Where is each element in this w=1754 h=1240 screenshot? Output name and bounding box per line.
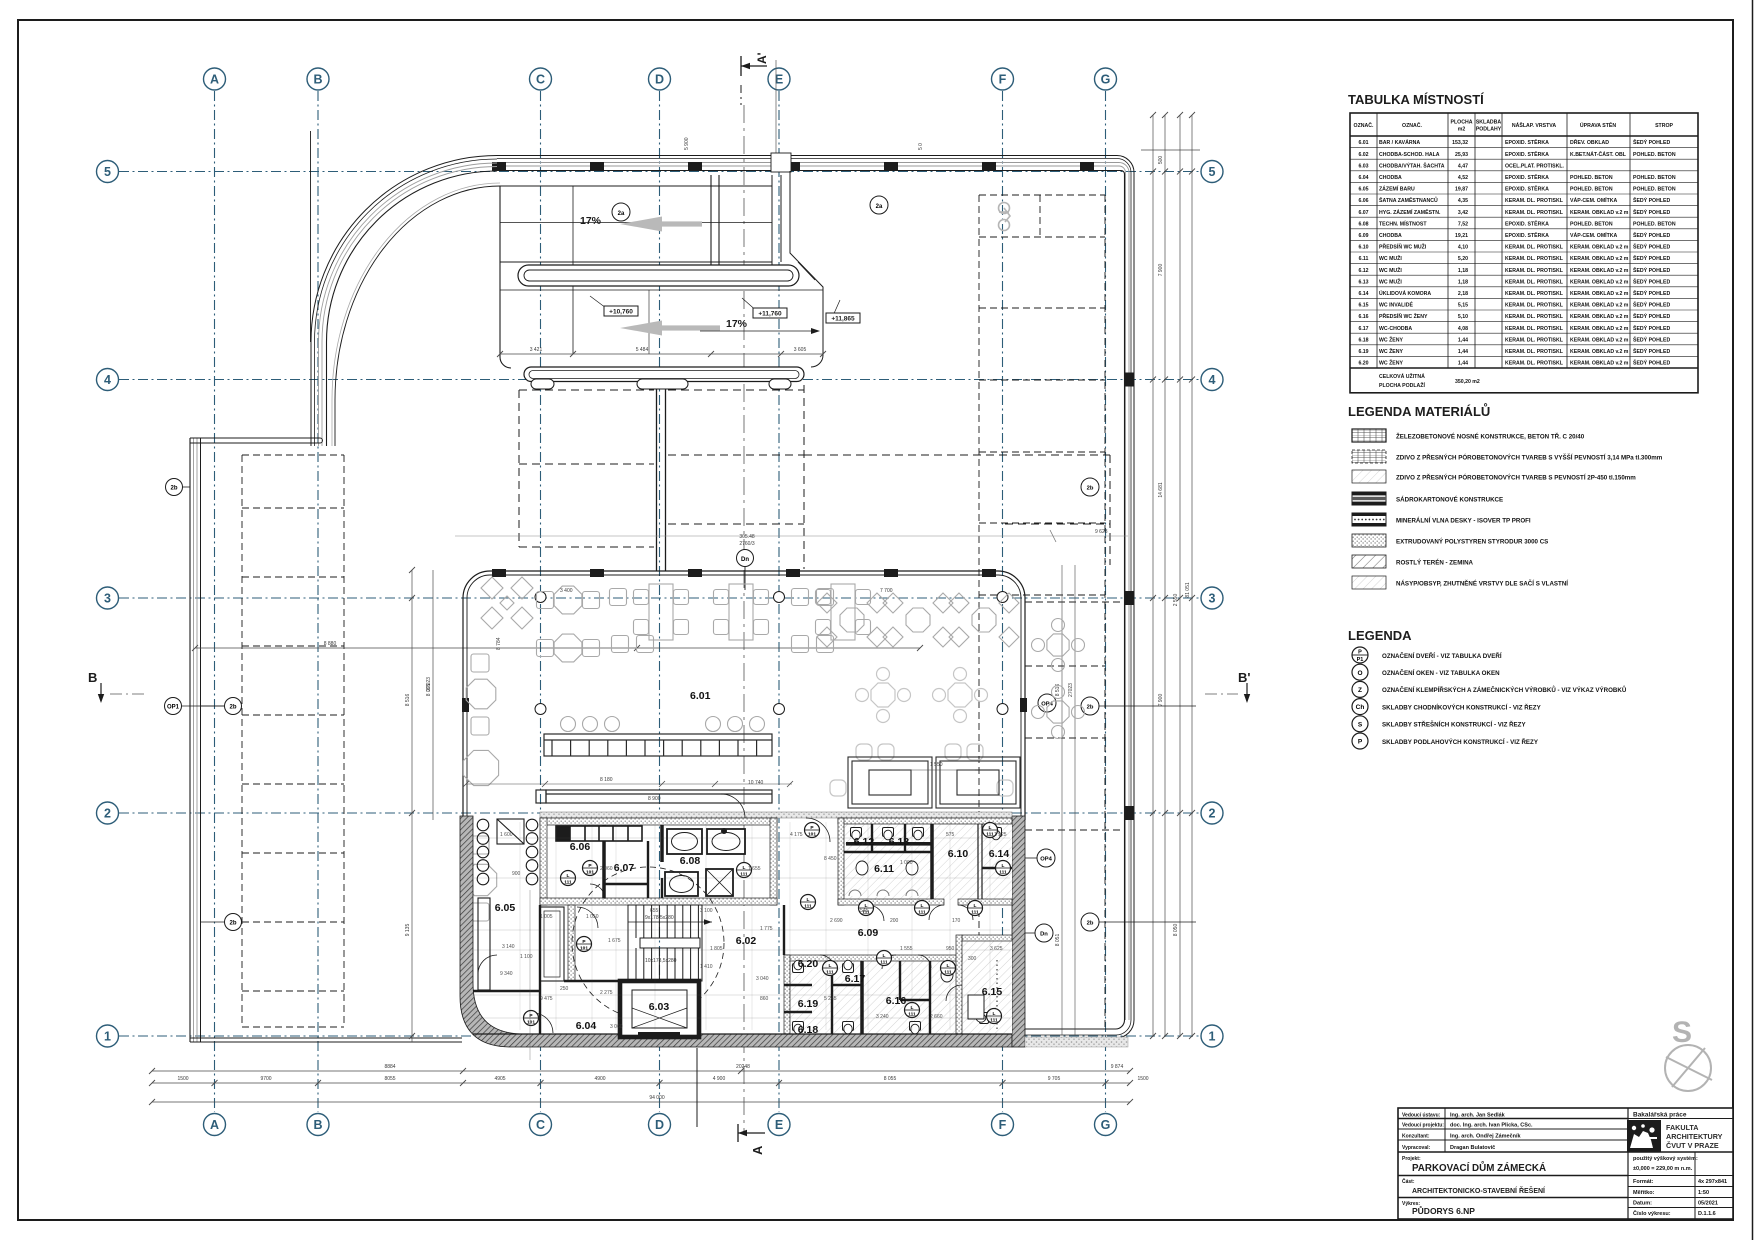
- svg-text:3 140: 3 140: [502, 944, 515, 950]
- svg-text:2 275: 2 275: [600, 990, 613, 996]
- svg-text:DŘEV. OBKLAD: DŘEV. OBKLAD: [1570, 138, 1609, 146]
- svg-text:3,42: 3,42: [1458, 210, 1468, 216]
- svg-text:8 180: 8 180: [600, 777, 613, 783]
- svg-text:KERAM. OBKLAD v.2 m: KERAM. OBKLAD v.2 m: [1570, 268, 1629, 274]
- svg-text:111: 111: [944, 969, 952, 975]
- svg-text:10x178,5x280: 10x178,5x280: [645, 958, 677, 964]
- svg-text:PŘEDSÍŇ WC ŽENY: PŘEDSÍŇ WC ŽENY: [1379, 312, 1428, 320]
- svg-text:PARKOVACÍ DŮM ZÁMECKÁ: PARKOVACÍ DŮM ZÁMECKÁ: [1412, 1162, 1546, 1174]
- svg-text:POHLED. BETON: POHLED. BETON: [1570, 221, 1613, 227]
- svg-text:8 516: 8 516: [405, 694, 411, 707]
- svg-text:KERAM. DL. PROTISKL: KERAM. DL. PROTISKL: [1505, 245, 1564, 251]
- svg-text:KERAM. DL. PROTISKL: KERAM. DL. PROTISKL: [1505, 361, 1564, 367]
- svg-text:6.17: 6.17: [845, 973, 866, 985]
- svg-text:6.17: 6.17: [1358, 326, 1368, 332]
- svg-text:8 055: 8 055: [884, 1076, 897, 1082]
- svg-text:L: L: [807, 897, 810, 903]
- svg-text:6.02: 6.02: [1358, 152, 1368, 158]
- svg-text:1 555: 1 555: [900, 946, 913, 952]
- svg-text:OZNAČENÍ KLEMPÍŘSKÝCH A ZÁMEČN: OZNAČENÍ KLEMPÍŘSKÝCH A ZÁMEČNICKÝCH VÝR…: [1382, 686, 1627, 694]
- svg-text:5: 5: [104, 165, 111, 179]
- svg-text:G: G: [1101, 72, 1111, 86]
- svg-text:5: 5: [1209, 165, 1216, 179]
- svg-text:Z: Z: [1358, 687, 1362, 694]
- svg-text:2: 2: [1209, 806, 1216, 820]
- svg-text:POHLED. BETON: POHLED. BETON: [1633, 175, 1676, 181]
- svg-text:111: 111: [804, 903, 812, 909]
- svg-text:FAKULTA: FAKULTA: [1666, 1123, 1698, 1132]
- svg-text:6.11: 6.11: [874, 863, 894, 875]
- svg-text:ŠEDÝ POHLED: ŠEDÝ POHLED: [1633, 347, 1670, 355]
- svg-text:2a: 2a: [876, 204, 883, 210]
- svg-text:PLOCHA PODLAŽÍ: PLOCHA PODLAŽÍ: [1379, 381, 1425, 389]
- svg-text:ŠEDÝ POHLED: ŠEDÝ POHLED: [1633, 266, 1670, 274]
- svg-text:6.07: 6.07: [1358, 210, 1368, 216]
- svg-text:Ing. arch. Jan Sedlák: Ing. arch. Jan Sedlák: [1450, 1112, 1506, 1118]
- svg-text:C: C: [536, 1118, 545, 1132]
- svg-text:305.48: 305.48: [739, 534, 755, 540]
- svg-text:KERAM. DL. PROTISKL: KERAM. DL. PROTISKL: [1505, 279, 1564, 285]
- svg-text:+11,760: +11,760: [758, 311, 782, 318]
- svg-text:8 880: 8 880: [324, 641, 337, 647]
- svg-text:Datum:: Datum:: [1633, 1201, 1652, 1207]
- svg-text:8884: 8884: [384, 1064, 395, 1070]
- svg-text:6.04: 6.04: [576, 1020, 597, 1032]
- svg-text:2a: 2a: [618, 211, 625, 217]
- svg-text:ARCHITEKTONICKO-STAVEBNÍ ŘEŠEN: ARCHITEKTONICKO-STAVEBNÍ ŘEŠENÍ: [1412, 1186, 1546, 1195]
- svg-text:350,20 m2: 350,20 m2: [1455, 379, 1480, 385]
- svg-text:+10,760: +10,760: [609, 309, 633, 316]
- svg-text:KERAM. OBKLAD v.2 m: KERAM. OBKLAD v.2 m: [1570, 349, 1629, 355]
- svg-text:2 550: 2 550: [1173, 594, 1179, 607]
- svg-text:ŠEDÝ POHLED: ŠEDÝ POHLED: [1633, 243, 1670, 251]
- svg-text:6.15: 6.15: [1358, 303, 1368, 309]
- svg-text:Konzultant:: Konzultant:: [1402, 1134, 1430, 1140]
- svg-text:ŠEDÝ POHLED: ŠEDÝ POHLED: [1633, 301, 1670, 309]
- svg-text:D: D: [655, 72, 664, 86]
- svg-text:LEGENDA: LEGENDA: [1348, 628, 1412, 643]
- svg-text:1,44: 1,44: [1458, 361, 1468, 367]
- svg-text:1500: 1500: [1137, 1076, 1148, 1082]
- svg-text:6.10: 6.10: [948, 848, 969, 860]
- svg-text:SKLADBY PODLAHOVÝCH KONSTRUKCÍ: SKLADBY PODLAHOVÝCH KONSTRUKCÍ - VIZ ŘEZ…: [1382, 738, 1539, 746]
- svg-text:KERAM. OBKLAD v.2 m: KERAM. OBKLAD v.2 m: [1570, 210, 1629, 216]
- svg-text:WC MUŽI: WC MUŽI: [1379, 277, 1402, 285]
- svg-text:6.03: 6.03: [1358, 163, 1368, 169]
- svg-text:CHODBA: CHODBA: [1379, 233, 1402, 239]
- svg-text:B: B: [313, 72, 322, 86]
- svg-text:20248: 20248: [736, 1064, 750, 1070]
- svg-text:EXTRUDOVANÝ POLYSTYREN STYRODU: EXTRUDOVANÝ POLYSTYREN STYRODUR 3000 CS: [1396, 539, 1548, 546]
- svg-text:L: L: [993, 1011, 996, 1017]
- svg-text:1,18: 1,18: [1458, 268, 1468, 274]
- svg-text:±0,000 = 229,00 m n.m.: ±0,000 = 229,00 m n.m.: [1633, 1166, 1693, 1172]
- svg-text:KERAM. DL. PROTISKL: KERAM. DL. PROTISKL: [1505, 326, 1564, 332]
- svg-text:6.09: 6.09: [1358, 233, 1368, 239]
- svg-text:OZNAČENÍ OKEN - VIZ TABULKA OK: OZNAČENÍ OKEN - VIZ TABULKA OKEN: [1382, 669, 1500, 677]
- svg-text:A: A: [210, 72, 219, 86]
- svg-text:111: 111: [740, 871, 748, 877]
- svg-text:6.18: 6.18: [798, 1024, 819, 1036]
- svg-text:8 450: 8 450: [824, 856, 837, 862]
- svg-text:1 925: 1 925: [994, 832, 1007, 838]
- svg-text:EPOXID. STĚRKA: EPOXID. STĚRKA: [1505, 173, 1549, 181]
- svg-text:3 421: 3 421: [530, 347, 543, 353]
- svg-text:OP1: OP1: [167, 705, 180, 711]
- svg-text:VÁP-CEM. OMÍTKA: VÁP-CEM. OMÍTKA: [1570, 196, 1618, 204]
- svg-text:SKLADBY STŘEŠNÍCH KONSTRUKCÍ -: SKLADBY STŘEŠNÍCH KONSTRUKCÍ - VIZ ŘEZY: [1382, 721, 1526, 729]
- svg-text:ŠEDÝ POHLED: ŠEDÝ POHLED: [1633, 208, 1670, 216]
- svg-text:Vedoucí ústavu:: Vedoucí ústavu:: [1402, 1112, 1441, 1118]
- svg-text:ŠEDÝ POHLED: ŠEDÝ POHLED: [1633, 312, 1670, 320]
- svg-text:7,52: 7,52: [1458, 221, 1468, 227]
- svg-text:4,47: 4,47: [1458, 163, 1468, 169]
- svg-text:2 660: 2 660: [930, 1014, 943, 1020]
- svg-text:EPOXID. STĚRKA: EPOXID. STĚRKA: [1505, 138, 1549, 146]
- svg-text:1 000: 1 000: [900, 860, 913, 866]
- svg-text:KERAM. OBKLAD v.2 m: KERAM. OBKLAD v.2 m: [1570, 291, 1629, 297]
- svg-text:PŘEDSÍŇ WC MUŽI: PŘEDSÍŇ WC MUŽI: [1379, 243, 1427, 251]
- svg-text:4: 4: [104, 373, 111, 387]
- svg-text:ÚPRAVA STĚN: ÚPRAVA STĚN: [1580, 121, 1616, 129]
- svg-text:4: 4: [1209, 373, 1216, 387]
- svg-text:545: 545: [860, 908, 869, 914]
- svg-text:2b: 2b: [229, 705, 236, 711]
- svg-text:2b: 2b: [1087, 486, 1094, 492]
- svg-text:1 655: 1 655: [748, 866, 761, 872]
- svg-text:MINERÁLNÍ VLNA DESKY - ISOVER: MINERÁLNÍ VLNA DESKY - ISOVER TP PROFI: [1396, 517, 1531, 525]
- svg-text:KERAM. OBKLAD v.2 m: KERAM. OBKLAD v.2 m: [1570, 314, 1629, 320]
- svg-text:L: L: [883, 953, 886, 959]
- svg-text:6.19: 6.19: [1358, 349, 1368, 355]
- svg-text:6.18: 6.18: [1358, 337, 1368, 343]
- svg-text:9 340: 9 340: [500, 971, 513, 977]
- svg-text:111: 111: [990, 1017, 998, 1023]
- svg-text:Číslo výkresu:: Číslo výkresu:: [1633, 1210, 1671, 1217]
- svg-text:WC ŽENY: WC ŽENY: [1379, 335, 1403, 343]
- svg-text:ROSTLÝ TERÉN - ZEMINA: ROSTLÝ TERÉN - ZEMINA: [1396, 559, 1474, 567]
- svg-text:B': B': [1238, 670, 1250, 685]
- svg-text:1 675: 1 675: [608, 938, 621, 944]
- svg-text:2b: 2b: [1087, 705, 1094, 711]
- svg-text:POHLED. BETON: POHLED. BETON: [1633, 187, 1676, 193]
- svg-text:KERAM. OBKLAD v.2 m: KERAM. OBKLAD v.2 m: [1570, 326, 1629, 332]
- svg-text:KERAM. DL. PROTISKL: KERAM. DL. PROTISKL: [1505, 268, 1564, 274]
- svg-text:19,21: 19,21: [1455, 233, 1468, 239]
- svg-text:5,20: 5,20: [1458, 256, 1468, 262]
- svg-text:POHLED. BETON: POHLED. BETON: [1633, 152, 1676, 158]
- svg-text:STROP: STROP: [1655, 123, 1673, 129]
- svg-text:KERAM. OBKLAD v.2 m: KERAM. OBKLAD v.2 m: [1570, 337, 1629, 343]
- svg-text:6.16: 6.16: [886, 995, 907, 1007]
- svg-text:CHODBA: CHODBA: [1379, 175, 1402, 181]
- svg-text:2 690: 2 690: [830, 918, 843, 924]
- svg-text:1 100: 1 100: [520, 954, 533, 960]
- svg-text:TECHN. MÍSTNOST: TECHN. MÍSTNOST: [1379, 219, 1427, 227]
- svg-text:2b: 2b: [1087, 921, 1094, 927]
- svg-text:NÁSYP/OBSYP, ZHUTNĚNÉ VRSTVY D: NÁSYP/OBSYP, ZHUTNĚNÉ VRSTVY DLE SAČÍ S …: [1396, 580, 1568, 588]
- svg-text:9 475: 9 475: [540, 996, 553, 1002]
- svg-text:4905: 4905: [494, 1076, 505, 1082]
- svg-text:A': A': [755, 52, 769, 64]
- svg-text:WC ŽENY: WC ŽENY: [1379, 347, 1403, 355]
- svg-text:6.01: 6.01: [690, 690, 711, 702]
- svg-text:6.07: 6.07: [614, 862, 635, 874]
- svg-text:4900: 4900: [594, 1076, 605, 1082]
- svg-text:1:50: 1:50: [1698, 1190, 1709, 1196]
- svg-text:8055: 8055: [384, 1076, 395, 1082]
- svg-text:3 040: 3 040: [756, 976, 769, 982]
- svg-text:19,87: 19,87: [1455, 187, 1468, 193]
- svg-text:6.15: 6.15: [982, 986, 1003, 998]
- svg-text:05/2021: 05/2021: [1698, 1201, 1718, 1207]
- svg-text:3 400: 3 400: [560, 588, 573, 594]
- svg-text:ŠEDÝ POHLED: ŠEDÝ POHLED: [1633, 254, 1670, 262]
- svg-text:D: D: [655, 1118, 664, 1132]
- svg-text:9x178,5x280: 9x178,5x280: [645, 915, 674, 921]
- svg-text:Ch: Ch: [1356, 704, 1365, 711]
- svg-text:L: L: [974, 903, 977, 909]
- svg-text:5,15: 5,15: [1458, 303, 1468, 309]
- svg-text:HYG. ZÁZEMÍ ZAMĚSTN.: HYG. ZÁZEMÍ ZAMĚSTN.: [1379, 208, 1441, 216]
- svg-text:L: L: [829, 963, 832, 969]
- svg-text:CHODBA-SCHOD. HALA: CHODBA-SCHOD. HALA: [1379, 152, 1440, 158]
- svg-text:P: P: [1358, 650, 1362, 656]
- svg-text:WC MUŽI: WC MUŽI: [1379, 254, 1402, 262]
- svg-text:ŠEDÝ POHLED: ŠEDÝ POHLED: [1633, 196, 1670, 204]
- svg-text:8 050: 8 050: [1173, 924, 1179, 937]
- svg-text:D.1.1.6: D.1.1.6: [1698, 1211, 1716, 1217]
- svg-text:1 805: 1 805: [710, 946, 723, 952]
- svg-text:A: A: [210, 1118, 219, 1132]
- svg-text:ŽELEZOBETONOVÉ NOSNÉ KONSTRUKC: ŽELEZOBETONOVÉ NOSNÉ KONSTRUKCE, BETON T…: [1396, 433, 1585, 441]
- svg-text:2 060: 2 060: [600, 866, 613, 872]
- svg-text:ŠEDÝ POHLED: ŠEDÝ POHLED: [1633, 138, 1670, 146]
- svg-text:17%: 17%: [726, 318, 748, 330]
- svg-text:153,32: 153,32: [1452, 140, 1468, 146]
- svg-text:8 051: 8 051: [1055, 934, 1061, 947]
- svg-text:5 245: 5 245: [824, 996, 837, 1002]
- svg-text:BAR / KAVÁRNA: BAR / KAVÁRNA: [1379, 139, 1420, 146]
- svg-text:KERAM. DL. PROTISKL: KERAM. DL. PROTISKL: [1505, 314, 1564, 320]
- svg-text:111: 111: [918, 909, 926, 915]
- svg-text:81 051: 81 051: [1185, 582, 1191, 598]
- svg-text:KERAM. DL. PROTISKL: KERAM. DL. PROTISKL: [1505, 210, 1564, 216]
- svg-text:KERAM. DL. PROTISKL: KERAM. DL. PROTISKL: [1505, 303, 1564, 309]
- svg-text:500: 500: [1158, 156, 1164, 165]
- svg-text:K.BET.NÁT-ČÁST. OBL: K.BET.NÁT-ČÁST. OBL: [1570, 151, 1627, 158]
- svg-text:ŠEDÝ POHLED: ŠEDÝ POHLED: [1633, 277, 1670, 285]
- svg-text:6.03: 6.03: [649, 1001, 670, 1013]
- svg-text:WC MUŽI: WC MUŽI: [1379, 266, 1402, 274]
- svg-text:WC ŽENY: WC ŽENY: [1379, 359, 1403, 367]
- svg-text:1,44: 1,44: [1458, 337, 1468, 343]
- svg-text:1 005: 1 005: [540, 914, 553, 920]
- svg-text:6.13: 6.13: [1358, 279, 1368, 285]
- svg-text:KERAM. OBKLAD v.2 m: KERAM. OBKLAD v.2 m: [1570, 279, 1629, 285]
- svg-text:CHODBA/VÝTAH. ŠACHTA: CHODBA/VÝTAH. ŠACHTA: [1379, 161, 1445, 169]
- svg-text:KERAM. DL. PROTISKL: KERAM. DL. PROTISKL: [1505, 349, 1564, 355]
- svg-text:6.16: 6.16: [1358, 314, 1368, 320]
- svg-text:1 050: 1 050: [586, 914, 599, 920]
- svg-text:860: 860: [760, 996, 769, 1002]
- svg-text:111: 111: [999, 869, 1007, 875]
- svg-text:m2: m2: [1458, 127, 1466, 133]
- svg-text:6.20: 6.20: [1358, 361, 1368, 367]
- svg-text:ZÁZEMÍ BARU: ZÁZEMÍ BARU: [1379, 185, 1415, 193]
- svg-text:94 000: 94 000: [649, 1095, 665, 1101]
- svg-text:101: 101: [527, 1019, 535, 1025]
- svg-text:G: G: [1101, 1118, 1111, 1132]
- svg-text:9 623: 9 623: [1095, 529, 1108, 535]
- svg-text:S: S: [1358, 721, 1363, 728]
- svg-text:KERAM. OBKLAD v.2 m: KERAM. OBKLAD v.2 m: [1570, 361, 1629, 367]
- svg-text:27023: 27023: [1068, 683, 1074, 697]
- svg-text:Dragan Bulatovič: Dragan Bulatovič: [1450, 1145, 1495, 1151]
- svg-text:3 625: 3 625: [990, 946, 1003, 952]
- svg-text:ŠATNA ZAMĚSTNANCŮ: ŠATNA ZAMĚSTNANCŮ: [1379, 196, 1438, 204]
- svg-text:300: 300: [968, 956, 977, 962]
- svg-text:doc. Ing. arch. Ivan Plicka, C: doc. Ing. arch. Ivan Plicka, CSc.: [1450, 1123, 1533, 1129]
- svg-text:1500: 1500: [177, 1076, 188, 1082]
- svg-text:použitý výškový systém:: použitý výškový systém:: [1633, 1156, 1698, 1162]
- svg-text:8 06527023: 8 06527023: [426, 677, 432, 696]
- svg-text:1 600: 1 600: [500, 832, 513, 838]
- svg-text:ÚKLIDOVÁ KOMORA: ÚKLIDOVÁ KOMORA: [1379, 290, 1431, 297]
- svg-text:P: P: [1358, 739, 1363, 746]
- svg-text:4,52: 4,52: [1458, 175, 1468, 181]
- svg-text:6.04: 6.04: [1358, 175, 1368, 181]
- svg-text:3 060: 3 060: [610, 1024, 623, 1030]
- svg-text:Projekt:: Projekt:: [1402, 1156, 1421, 1162]
- svg-text:6.01: 6.01: [1358, 140, 1368, 146]
- svg-text:6.12: 6.12: [1358, 268, 1368, 274]
- svg-text:3: 3: [1209, 591, 1216, 605]
- svg-text:KERAM. DL. PROTISKL: KERAM. DL. PROTISKL: [1505, 337, 1564, 343]
- svg-text:1,44: 1,44: [1458, 349, 1468, 355]
- svg-text:6.05: 6.05: [495, 902, 516, 914]
- svg-text:9700: 9700: [260, 1076, 271, 1082]
- svg-text:POHLED. BETON: POHLED. BETON: [1633, 221, 1676, 227]
- svg-text:2: 2: [104, 806, 111, 820]
- svg-text:3 100: 3 100: [700, 908, 713, 914]
- svg-text:+11,865: +11,865: [831, 316, 855, 323]
- svg-text:Dn: Dn: [741, 557, 749, 563]
- svg-text:L: L: [921, 903, 924, 909]
- svg-text:4 175: 4 175: [790, 832, 803, 838]
- svg-text:ŠEDÝ POHLED: ŠEDÝ POHLED: [1633, 324, 1670, 332]
- svg-text:6.06: 6.06: [570, 841, 591, 853]
- svg-text:EPOXID. STĚRKA: EPOXID. STĚRKA: [1505, 231, 1549, 239]
- svg-text:10 740: 10 740: [748, 780, 764, 786]
- svg-text:111: 111: [880, 959, 888, 965]
- svg-text:200: 200: [890, 918, 899, 924]
- svg-text:L: L: [1002, 863, 1005, 869]
- svg-text:6.19: 6.19: [798, 998, 819, 1010]
- svg-text:Ing. arch. Ondřej Zámečník: Ing. arch. Ondřej Zámečník: [1450, 1134, 1522, 1140]
- svg-text:6.05: 6.05: [1358, 187, 1368, 193]
- svg-text:POHLED. BETON: POHLED. BETON: [1570, 175, 1613, 181]
- svg-text:OP4: OP4: [1040, 857, 1052, 863]
- svg-text:900: 900: [512, 871, 521, 877]
- svg-text:8 784: 8 784: [496, 637, 502, 650]
- svg-text:NÁŠLAP. VRSTVA: NÁŠLAP. VRSTVA: [1512, 121, 1556, 129]
- svg-text:KERAM. DL. PROTISKL: KERAM. DL. PROTISKL: [1505, 256, 1564, 262]
- svg-text:P1: P1: [1357, 657, 1364, 663]
- svg-text:6.14: 6.14: [989, 848, 1010, 860]
- svg-text:Vypracoval:: Vypracoval:: [1402, 1145, 1430, 1151]
- svg-text:B: B: [88, 670, 97, 685]
- svg-text:2,18: 2,18: [1458, 291, 1468, 297]
- svg-text:E: E: [775, 1118, 783, 1132]
- svg-text:111: 111: [826, 969, 834, 975]
- svg-text:B: B: [313, 1118, 322, 1132]
- svg-text:F: F: [999, 1118, 1007, 1132]
- svg-text:6.20: 6.20: [798, 958, 819, 970]
- svg-text:O: O: [1357, 670, 1362, 677]
- svg-text:6.08: 6.08: [1358, 221, 1368, 227]
- svg-text:1,18: 1,18: [1458, 279, 1468, 285]
- svg-text:6.14: 6.14: [1358, 291, 1368, 297]
- svg-text:KERAM. DL. PROTISKL: KERAM. DL. PROTISKL: [1505, 198, 1564, 204]
- svg-text:OZNAČ.: OZNAČ.: [1354, 122, 1374, 129]
- svg-text:Měřítko:: Měřítko:: [1633, 1190, 1655, 1196]
- svg-text:EPOXID. STĚRKA: EPOXID. STĚRKA: [1505, 185, 1549, 193]
- svg-text:4x 297x841: 4x 297x841: [1698, 1179, 1727, 1185]
- svg-text:ZDIVO Z PŘESNÝCH PÓROBETONOVÝC: ZDIVO Z PŘESNÝCH PÓROBETONOVÝCH TVAREB S…: [1396, 474, 1636, 482]
- svg-text:1: 1: [1209, 1029, 1216, 1043]
- svg-text:2760/3: 2760/3: [739, 541, 755, 547]
- svg-text:6.08: 6.08: [680, 855, 701, 867]
- svg-text:EPOXID. STĚRKA: EPOXID. STĚRKA: [1505, 150, 1549, 158]
- svg-text:4,08: 4,08: [1458, 326, 1468, 332]
- svg-text:Část:: Část:: [1402, 1178, 1415, 1185]
- svg-text:2b: 2b: [170, 486, 177, 492]
- svg-text:ŠEDÝ POHLED: ŠEDÝ POHLED: [1633, 359, 1670, 367]
- svg-text:7 700: 7 700: [880, 588, 893, 594]
- svg-text:PŮDORYS 6.NP: PŮDORYS 6.NP: [1412, 1205, 1475, 1216]
- svg-text:655: 655: [650, 908, 659, 914]
- svg-text:A: A: [750, 1145, 765, 1155]
- svg-text:ZDIVO Z PŘESNÝCH PÓROBETONOVÝC: ZDIVO Z PŘESNÝCH PÓROBETONOVÝCH TVAREB S…: [1396, 454, 1663, 462]
- svg-text:2b: 2b: [229, 921, 236, 927]
- svg-text:9 135: 9 135: [405, 924, 411, 937]
- svg-text:ŠEDÝ POHLED: ŠEDÝ POHLED: [1633, 335, 1670, 343]
- svg-text:F: F: [999, 72, 1007, 86]
- svg-text:L: L: [743, 865, 746, 871]
- svg-text:WC-CHODBA: WC-CHODBA: [1379, 326, 1412, 332]
- svg-text:14 681: 14 681: [1158, 482, 1164, 498]
- svg-text:ŠEDÝ POHLED: ŠEDÝ POHLED: [1633, 231, 1670, 239]
- svg-text:Dn: Dn: [1040, 932, 1048, 938]
- svg-text:SÁDROKARTONOVÉ KONSTRUKCE: SÁDROKARTONOVÉ KONSTRUKCE: [1396, 496, 1503, 504]
- svg-text:170: 170: [952, 918, 961, 924]
- svg-text:4 900: 4 900: [713, 1076, 726, 1082]
- svg-text:111: 111: [971, 909, 979, 915]
- svg-text:101: 101: [808, 831, 816, 837]
- svg-text:3 605: 3 605: [794, 347, 807, 353]
- svg-text:5 900: 5 900: [684, 137, 690, 150]
- svg-text:OZNAČ.: OZNAČ.: [1402, 122, 1422, 129]
- svg-text:17%: 17%: [580, 215, 602, 227]
- svg-text:111: 111: [564, 879, 572, 885]
- svg-text:950: 950: [946, 946, 955, 952]
- svg-text:3 240: 3 240: [876, 1014, 889, 1020]
- svg-text:8 900: 8 900: [648, 796, 661, 802]
- svg-text:6.10: 6.10: [1358, 245, 1368, 251]
- svg-text:KERAM. OBKLAD v.2 m: KERAM. OBKLAD v.2 m: [1570, 245, 1629, 251]
- svg-text:ČVUT V PRAZE: ČVUT V PRAZE: [1666, 1141, 1719, 1150]
